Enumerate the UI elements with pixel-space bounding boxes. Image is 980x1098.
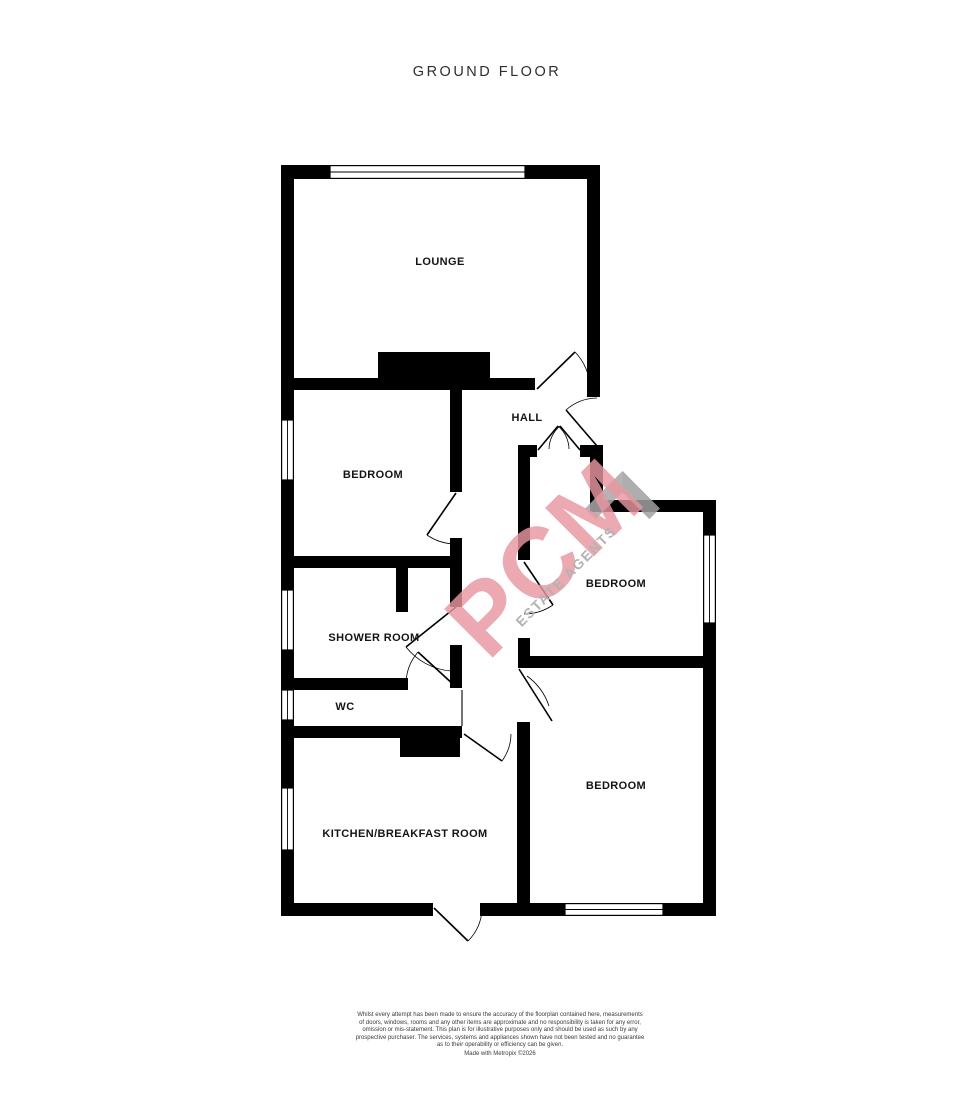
disclaimer-text: Whilst every attempt has been made to en… — [300, 1012, 700, 1059]
room-label-hall: HALL — [512, 412, 543, 424]
wall-kitchen-right — [517, 738, 530, 903]
disclaimer-line: omission or mis-statement. This plan is … — [300, 1027, 700, 1035]
door-hall-leaf-left — [538, 426, 558, 450]
wall-bottom-mid-seg — [480, 903, 565, 916]
door-front-arc — [566, 398, 597, 410]
wall-bottom-right-seg — [663, 903, 716, 916]
door-bottombedroom-leaf — [519, 669, 552, 721]
room-label-bedroom-left: BEDROOM — [343, 469, 403, 481]
wall-shower-top — [281, 556, 462, 568]
wall-bedroomleft-right-c — [450, 645, 462, 688]
disclaimer-credit: Made with Metropix ©2026 — [300, 1051, 700, 1059]
wall-bedroomleft-right-a — [450, 390, 462, 492]
room-label-shower-room: SHOWER ROOM — [328, 632, 419, 644]
lounge-chimney — [378, 352, 490, 390]
door-kitchen-leaf — [464, 734, 502, 761]
wall-shower-stub — [396, 568, 408, 612]
disclaimer-line: Whilst every attempt has been made to en… — [300, 1012, 700, 1020]
door-lounge-leaf — [537, 352, 575, 389]
wall-bottom-left-seg — [281, 903, 433, 916]
room-label-kitchen: KITCHEN/BREAKFAST ROOM — [322, 828, 487, 840]
disclaimer-line: of doors, windows, rooms and any other i… — [300, 1020, 700, 1028]
wall-shower-bottom — [281, 678, 408, 690]
room-label-bedroom-bottom: BEDROOM — [586, 780, 646, 792]
door-wc-leaf — [418, 652, 455, 686]
wall-midbedroom-bottom — [518, 656, 716, 668]
kitchen-chimney — [400, 726, 460, 757]
room-label-lounge: LOUNGE — [415, 256, 464, 268]
wall-corridor-stub — [517, 722, 530, 738]
disclaimer-line: as to their operability or efficiency ca… — [300, 1042, 700, 1050]
door-bedroomleft-leaf — [427, 493, 456, 535]
door-bottombedroom-arc — [527, 676, 549, 706]
door-kitchen-arc — [502, 734, 511, 761]
door-kitchen-exterior-arc — [468, 909, 482, 941]
disclaimer-line: prospective purchaser. The services, sys… — [300, 1035, 700, 1043]
room-label-wc: WC — [335, 701, 354, 713]
door-kitchen-exterior-leaf — [434, 908, 468, 941]
wall-lounge-right — [587, 165, 600, 397]
